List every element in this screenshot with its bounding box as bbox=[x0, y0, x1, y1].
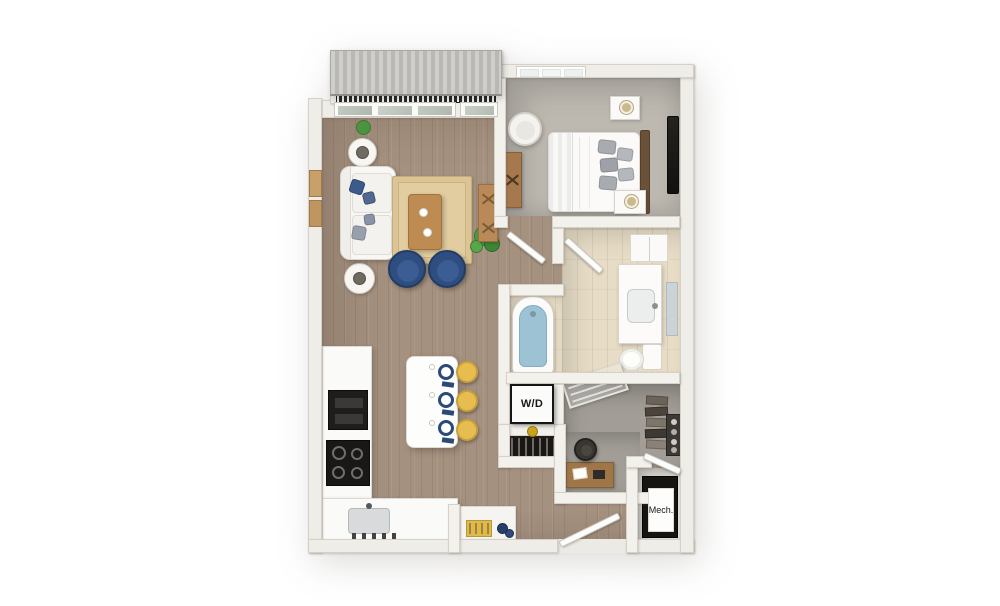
hall-bath-wall-stub bbox=[552, 228, 564, 264]
door-glass bbox=[465, 106, 494, 115]
bed-throw-blanket bbox=[549, 133, 573, 211]
wall-tv bbox=[667, 116, 679, 194]
mechanical-label: Mech. bbox=[649, 489, 673, 531]
console-books bbox=[511, 438, 555, 458]
window-plant bbox=[356, 120, 371, 135]
toilet-bowl bbox=[619, 348, 644, 371]
exterior-wall-south-left bbox=[308, 539, 558, 553]
hanging-clothes bbox=[645, 429, 668, 439]
coffee-table bbox=[408, 194, 442, 250]
wall-art-frame bbox=[309, 170, 322, 197]
kitchen-sink bbox=[348, 508, 390, 534]
desk-chair-cushion bbox=[581, 445, 592, 456]
bar-stool bbox=[456, 361, 478, 383]
bedroom-armchair bbox=[508, 112, 542, 146]
linen-cabinet bbox=[630, 234, 668, 262]
place-setting-bowl bbox=[438, 392, 454, 408]
shoe bbox=[671, 429, 677, 435]
drinking-glass bbox=[429, 392, 435, 398]
desk-laptop bbox=[593, 470, 605, 479]
nightstand-lamp bbox=[625, 195, 638, 208]
bed-pillow bbox=[598, 175, 617, 191]
bathroom-mirror bbox=[666, 282, 678, 336]
hanging-clothes bbox=[646, 418, 668, 428]
wall-art-frame bbox=[309, 200, 322, 227]
hanging-clothes bbox=[646, 395, 668, 405]
oven-glass bbox=[335, 414, 363, 424]
bathroom-vanity bbox=[618, 264, 662, 344]
place-setting-bowl bbox=[438, 364, 454, 380]
washer-dryer-unit: W/D bbox=[510, 384, 554, 424]
bedroom-south-wall-right bbox=[552, 216, 680, 228]
bed-fold-line bbox=[579, 137, 580, 209]
coffee-cup bbox=[423, 228, 432, 237]
chair-cushion bbox=[397, 260, 419, 282]
sofa-back bbox=[341, 167, 351, 259]
window-glass bbox=[564, 69, 583, 77]
bar-stool bbox=[456, 390, 478, 412]
shoe bbox=[671, 419, 677, 425]
bathtub bbox=[512, 296, 554, 376]
desk-papers bbox=[572, 467, 587, 480]
place-setting-bowl bbox=[438, 420, 454, 436]
toilet-tank bbox=[642, 344, 662, 370]
drinking-glass bbox=[429, 420, 435, 426]
window-glass bbox=[338, 106, 372, 115]
living-bathroom-wall bbox=[498, 284, 510, 432]
window-glass bbox=[378, 106, 412, 115]
shoe-bench-yellow bbox=[466, 520, 492, 537]
bed-pillow bbox=[597, 139, 616, 155]
decor-bowl-gold bbox=[527, 426, 538, 437]
bathroom-south-wall bbox=[506, 372, 680, 384]
nightstand-lamp bbox=[620, 101, 633, 114]
sink-faucet bbox=[652, 303, 658, 309]
desk-nook-south-wall bbox=[554, 492, 654, 504]
cabinet-door-line bbox=[649, 237, 650, 261]
mechanical-panel: Mech. bbox=[648, 488, 674, 532]
hanging-clothes bbox=[645, 406, 668, 416]
burner bbox=[332, 446, 346, 460]
burner bbox=[351, 448, 363, 460]
bed-fold-line bbox=[589, 137, 590, 209]
desk-chair bbox=[574, 438, 597, 461]
drinking-glass bbox=[429, 364, 435, 370]
bed-pillow bbox=[617, 167, 634, 182]
chair-cushion bbox=[437, 260, 459, 282]
shoe bbox=[671, 439, 677, 445]
shoe-rack bbox=[666, 414, 681, 456]
desk bbox=[566, 462, 614, 488]
exterior-wall-east bbox=[680, 64, 694, 553]
sliding-window bbox=[334, 102, 456, 117]
balcony-door bbox=[460, 102, 498, 117]
window-glass bbox=[542, 69, 561, 77]
armchair-cushion bbox=[516, 121, 535, 140]
throw-pillow-gray bbox=[351, 225, 367, 241]
wall-oven-microwave bbox=[328, 390, 368, 430]
vanity-sink bbox=[627, 289, 655, 323]
hanging-clothes bbox=[646, 439, 668, 449]
table-lamp bbox=[353, 272, 366, 285]
washer-dryer-label: W/D bbox=[512, 386, 552, 422]
accent-chair-navy bbox=[428, 250, 466, 288]
sink-faucet bbox=[366, 503, 372, 509]
throw-pillow-gray bbox=[363, 213, 375, 225]
table-lamp bbox=[356, 146, 369, 159]
burner bbox=[332, 466, 345, 479]
window-glass bbox=[520, 69, 539, 77]
sofa bbox=[340, 166, 396, 260]
shoes-navy bbox=[505, 529, 514, 538]
bench-slats bbox=[469, 523, 489, 534]
burner bbox=[351, 467, 363, 479]
oven-glass bbox=[335, 398, 363, 408]
bedroom-window bbox=[516, 66, 586, 78]
cooktop bbox=[326, 440, 370, 486]
entry-nook-wall bbox=[448, 504, 460, 553]
bar-stool bbox=[456, 419, 478, 441]
bedroom-south-wall-left bbox=[494, 216, 508, 228]
bed-pillow bbox=[616, 147, 634, 162]
window-glass bbox=[418, 106, 452, 115]
floorplan-3d-render: W/D Mech. bbox=[0, 0, 1000, 606]
balcony-awning-roof bbox=[330, 50, 502, 96]
bed-pillow bbox=[599, 157, 618, 173]
exterior-wall-west bbox=[308, 98, 322, 553]
mech-closet-west-wall bbox=[626, 456, 638, 553]
bathtub-drain bbox=[530, 311, 536, 317]
shoe bbox=[671, 447, 677, 453]
coffee-cup bbox=[419, 208, 428, 217]
accent-chair-navy bbox=[388, 250, 426, 288]
floorplan-canvas: W/D Mech. bbox=[0, 0, 1000, 606]
